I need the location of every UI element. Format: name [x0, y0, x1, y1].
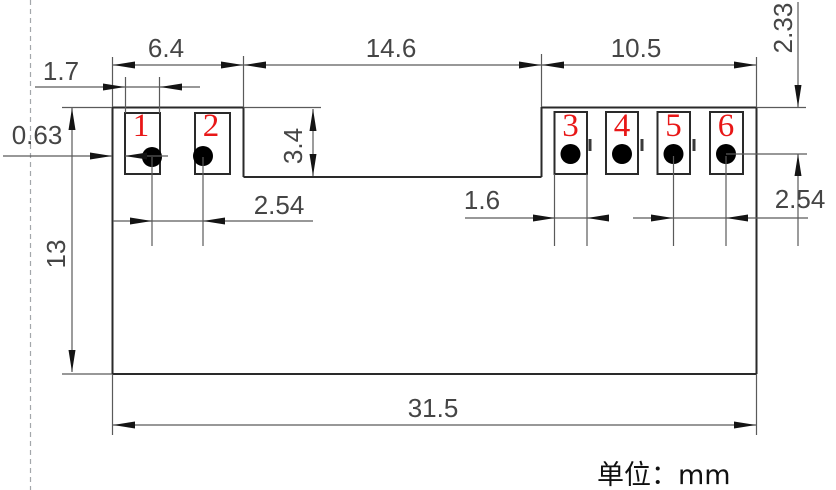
pad-number-5: 5 — [665, 108, 682, 144]
pad-3-hole — [561, 144, 581, 164]
dim-label-1-7: 1.7 — [43, 56, 79, 86]
pad-number-4: 4 — [614, 108, 631, 144]
pad-number-6: 6 — [718, 108, 735, 144]
engineering-drawing: 6.4 14.6 10.5 1.7 0.63 13 3.4 2.54 1.6 2… — [0, 0, 836, 490]
dim-label-1-6: 1.6 — [464, 185, 500, 215]
units-label: 单位：mm — [597, 460, 731, 490]
dim-label-13: 13 — [41, 240, 71, 269]
scan-mark-1 — [589, 139, 592, 151]
dim-label-6-4: 6.4 — [148, 33, 184, 63]
dim-label-14-6: 14.6 — [366, 33, 417, 63]
scan-mark-3 — [693, 139, 696, 151]
dim-label-31-5: 31.5 — [408, 393, 459, 423]
dim-label-2-33: 2.33 — [768, 3, 798, 54]
dim-label-3-4: 3.4 — [278, 128, 308, 164]
dim-edge-to-pad1 — [3, 153, 168, 160]
pad-number-2: 2 — [203, 108, 220, 144]
dim-pitch-right — [633, 215, 808, 222]
drawing-canvas: 6.4 14.6 10.5 1.7 0.63 13 3.4 2.54 1.6 2… — [0, 0, 836, 490]
dim-label-2-54-right: 2.54 — [775, 184, 826, 214]
pad-5-center-dot — [672, 153, 674, 155]
pad-number-1: 1 — [133, 108, 150, 144]
part-outline — [112, 107, 757, 374]
dim-label-10-5: 10.5 — [611, 33, 662, 63]
pad-4-hole — [612, 144, 632, 164]
extension-lines — [62, 54, 807, 435]
pad-number-3: 3 — [562, 108, 579, 144]
dim-label-2-54-left: 2.54 — [254, 190, 305, 220]
dim-label-0-63: 0.63 — [12, 120, 63, 150]
dim-notch-depth — [310, 109, 317, 176]
pad-2-center-dot — [202, 155, 204, 157]
scan-mark-2 — [641, 139, 644, 151]
